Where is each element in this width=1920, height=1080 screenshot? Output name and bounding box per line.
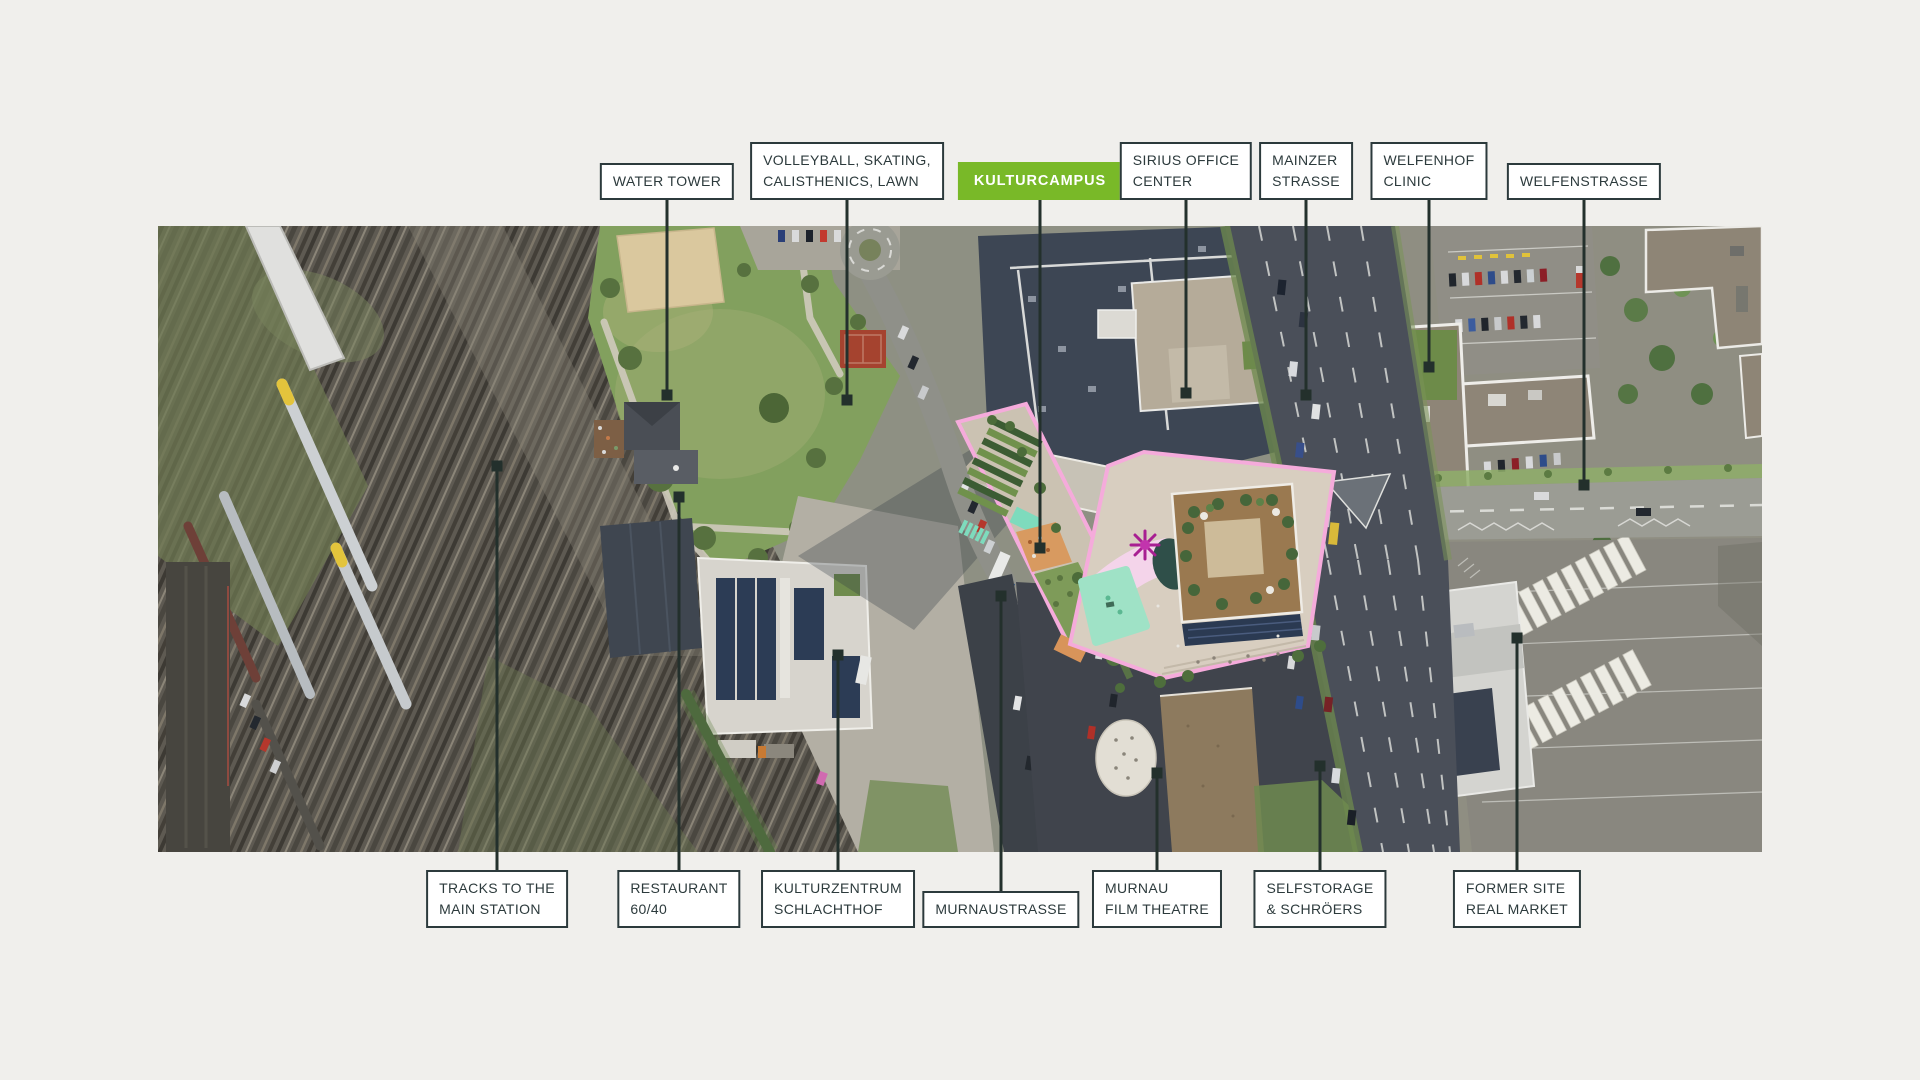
label-murnau-film-theatre: MURNAU FILM THEATRE xyxy=(1092,870,1222,928)
leader-tip-water-tower xyxy=(662,390,673,401)
label-sirius-office-center: SIRIUS OFFICE CENTER xyxy=(1120,142,1252,200)
leader-tip-kulturcampus xyxy=(1035,543,1046,554)
leader-line-sirius-office-center xyxy=(1185,200,1188,393)
leader-tip-tracks-to-main-station xyxy=(492,461,503,472)
label-kulturzentrum-schlachthof: KULTURZENTRUM SCHLACHTHOF xyxy=(761,870,915,928)
welfenstrasse-road xyxy=(1396,464,1762,540)
label-welfenstrasse: WELFENSTRASSE xyxy=(1507,163,1661,200)
leader-line-kulturzentrum-schlachthof xyxy=(837,655,840,870)
leader-tip-former-site-real-market xyxy=(1512,633,1523,644)
leader-tip-volleyball-area xyxy=(842,395,853,406)
leader-tip-murnau-film-theatre xyxy=(1152,768,1163,779)
leader-tip-kulturzentrum-schlachthof xyxy=(833,650,844,661)
leader-line-murnaustrasse xyxy=(1000,596,1003,891)
leader-tip-sirius-office-center xyxy=(1181,388,1192,399)
label-tracks-to-main-station: TRACKS TO THE MAIN STATION xyxy=(426,870,568,928)
leader-tip-selfstorage-schroeers xyxy=(1315,761,1326,772)
leader-line-welfenhof-clinic xyxy=(1428,200,1431,367)
leader-tip-welfenstrasse xyxy=(1579,480,1590,491)
leader-line-tracks-to-main-station xyxy=(496,466,499,870)
leader-line-water-tower xyxy=(666,200,669,395)
leader-line-volleyball-area xyxy=(846,200,849,400)
label-former-site-real-market: FORMER SITE REAL MARKET xyxy=(1453,870,1581,928)
site-plan: WATER TOWERVOLLEYBALL, SKATING, CALISTHE… xyxy=(0,0,1920,1080)
leader-line-restaurant-60-40 xyxy=(678,497,681,870)
leader-tip-restaurant-60-40 xyxy=(674,492,685,503)
leader-line-welfenstrasse xyxy=(1583,200,1586,485)
label-volleyball-area: VOLLEYBALL, SKATING, CALISTHENICS, LAWN xyxy=(750,142,944,200)
leader-line-kulturcampus xyxy=(1039,200,1042,548)
leader-line-selfstorage-schroeers xyxy=(1319,766,1322,870)
leader-tip-mainzer-strasse xyxy=(1301,390,1312,401)
leader-tip-murnaustrasse xyxy=(996,591,1007,602)
label-murnaustrasse: MURNAUSTRASSE xyxy=(922,891,1079,928)
aerial-map xyxy=(158,226,1762,852)
leader-tip-welfenhof-clinic xyxy=(1424,362,1435,373)
label-selfstorage-schroeers: SELFSTORAGE & SCHRÖERS xyxy=(1253,870,1386,928)
label-mainzer-strasse: MAINZER STRASSE xyxy=(1259,142,1353,200)
leader-line-former-site-real-market xyxy=(1516,638,1519,870)
label-restaurant-60-40: RESTAURANT 60/40 xyxy=(617,870,740,928)
leader-line-mainzer-strasse xyxy=(1305,200,1308,395)
label-welfenhof-clinic: WELFENHOF CLINIC xyxy=(1370,142,1487,200)
label-water-tower: WATER TOWER xyxy=(600,163,734,200)
label-kulturcampus: KULTURCAMPUS xyxy=(958,162,1122,200)
leader-line-murnau-film-theatre xyxy=(1156,773,1159,870)
